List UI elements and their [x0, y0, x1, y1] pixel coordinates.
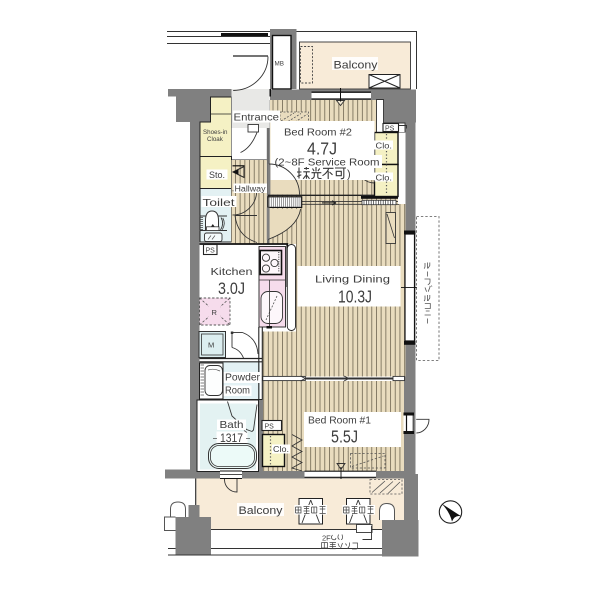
svg-text:Kitchen: Kitchen	[211, 267, 253, 278]
svg-text:1317: 1317	[220, 433, 243, 445]
svg-text:PS: PS	[265, 424, 275, 431]
svg-text:2F: 2F	[322, 534, 331, 543]
svg-text:Bed Room #2: Bed Room #2	[284, 128, 352, 139]
svg-text:Cloak: Cloak	[207, 136, 224, 143]
svg-text:Bed Room #1: Bed Room #1	[308, 416, 371, 427]
svg-text:PS: PS	[385, 126, 395, 133]
svg-text:10.3J: 10.3J	[338, 287, 372, 307]
svg-text:Balcony: Balcony	[239, 505, 284, 517]
svg-text:3.0J: 3.0J	[218, 280, 245, 298]
svg-text:PS: PS	[206, 248, 216, 255]
svg-text:Living Dining: Living Dining	[315, 275, 390, 286]
svg-text:5.5J: 5.5J	[331, 427, 358, 447]
svg-text:R: R	[212, 308, 218, 317]
svg-text:Clo.: Clo.	[376, 142, 393, 151]
svg-text:MB: MB	[275, 61, 284, 68]
svg-text:Room: Room	[225, 386, 250, 397]
svg-text:Clo.: Clo.	[376, 174, 393, 183]
svg-text:Powder: Powder	[225, 373, 261, 384]
svg-text:4.7J: 4.7J	[307, 139, 337, 159]
svg-text:Clo.: Clo.	[273, 445, 289, 454]
svg-text:Shoes-in: Shoes-in	[203, 129, 228, 136]
svg-text:Sto.: Sto.	[209, 170, 225, 181]
svg-text:): )	[347, 169, 351, 181]
svg-text:Balcony: Balcony	[334, 60, 379, 72]
svg-text:Toilet: Toilet	[203, 198, 235, 209]
svg-text:Entrance: Entrance	[234, 112, 280, 123]
svg-text:Hallway: Hallway	[235, 184, 267, 194]
svg-text:(2~8F Service Room: (2~8F Service Room	[275, 158, 380, 169]
svg-text:Bath: Bath	[220, 420, 244, 431]
svg-text:M: M	[208, 341, 214, 350]
